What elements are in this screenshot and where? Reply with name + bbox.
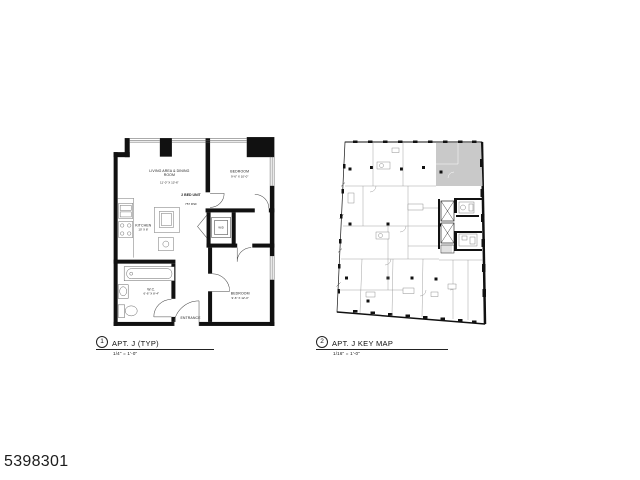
bedroom1-label: BEDROOM — [230, 170, 249, 174]
reference-number: 5398301 — [4, 453, 68, 471]
unit-type-label: 2 BED UNIT — [181, 193, 201, 197]
caption-apartment: 1 APT. J (TYP) 1/4" = 1'-0" — [96, 336, 214, 356]
caption-keymap: 2 APT. J KEY MAP 1/16" = 1'-0" — [316, 336, 448, 356]
toilet — [125, 306, 137, 316]
figure-scale: 1/4" = 1'-0" — [113, 351, 214, 356]
kitchen-fixtures — [118, 198, 180, 257]
stove — [119, 221, 133, 237]
interior-walls — [114, 138, 275, 322]
wc-dims: 6'-6" X 8'-4" — [143, 291, 159, 295]
apt-j-highlight — [436, 143, 483, 186]
figure-title: APT. J (TYP) — [112, 339, 159, 348]
toilet-tank — [118, 305, 125, 318]
living-room-label-2: ROOM — [164, 173, 175, 177]
exterior-walls — [114, 137, 275, 326]
living-room-dims: 11'-0" X 13'-6" — [160, 180, 179, 184]
figure-number-badge: 1 — [96, 336, 108, 348]
key-map — [333, 133, 493, 335]
apartment-floor-plan: LIVING AREA & DINING ROOM 11'-0" X 13'-6… — [95, 123, 291, 339]
wc-label: W.C. — [147, 287, 155, 291]
figure-scale: 1/16" = 1'-0" — [333, 351, 448, 356]
wd-label: W/D — [218, 225, 223, 229]
bedroom2-label: BEDROOM — [231, 291, 250, 295]
unit-area-label: 757 RSF — [185, 202, 197, 206]
kitchen-dims: 10' X 8' — [138, 227, 148, 231]
key-map-drawing — [333, 133, 493, 335]
living-room-label: LIVING AREA & DINING — [149, 169, 189, 173]
bedroom2-dims: 9'-6" X 12'-0" — [232, 296, 249, 300]
kitchen-label: KITCHEN — [135, 223, 151, 227]
figure-title: APT. J KEY MAP — [332, 339, 393, 348]
figure-number-badge: 2 — [316, 336, 328, 348]
caption-keymap-row: 2 APT. J KEY MAP — [316, 336, 448, 350]
entrance-label: ENTRANCE — [180, 316, 201, 320]
drawing-sheet: LIVING AREA & DINING ROOM 11'-0" X 13'-6… — [0, 0, 640, 480]
caption-apartment-row: 1 APT. J (TYP) — [96, 336, 214, 350]
bedroom1-dims: 9'-6" X 10'-0" — [231, 174, 248, 178]
apartment-floor-plan-drawing: LIVING AREA & DINING ROOM 11'-0" X 13'-6… — [95, 123, 291, 339]
